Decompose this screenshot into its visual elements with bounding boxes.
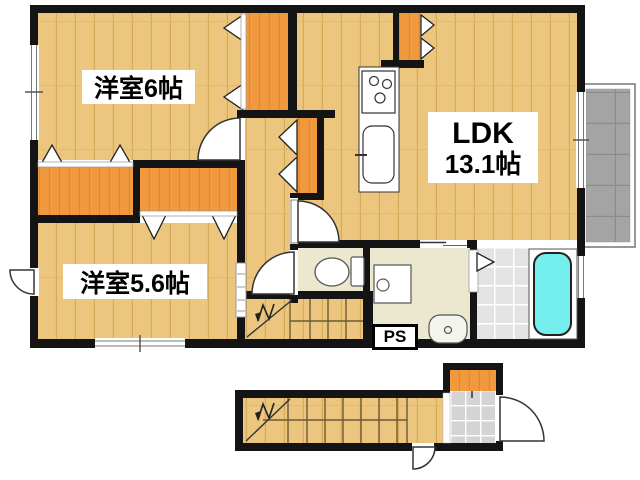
closet-a	[245, 13, 288, 110]
room-6-label: 洋室6帖	[82, 70, 195, 104]
second-floor	[10, 5, 635, 352]
kitchen	[355, 67, 399, 192]
ldk-door-leaf	[291, 200, 298, 243]
ldk-label-line2: 13.1帖	[445, 150, 522, 179]
toilet-icon	[315, 258, 349, 286]
bathtub-icon	[534, 253, 571, 335]
room56-door-arc	[10, 270, 34, 294]
closet-b	[297, 118, 317, 193]
ldk-label: LDK 13.1帖	[428, 112, 538, 183]
pipe-space-label: PS	[372, 324, 418, 350]
sliding-door	[236, 263, 246, 317]
toilet-tank	[351, 257, 364, 286]
first-floor-entrance	[235, 363, 544, 469]
closet-c2	[140, 168, 237, 215]
entry-step-strip	[443, 393, 450, 443]
entry-tile	[450, 391, 496, 443]
kitchen-sink-icon	[363, 126, 394, 183]
shoe-cabinet	[450, 370, 496, 391]
closet-c1	[38, 167, 133, 215]
balcony-deck	[586, 89, 630, 242]
stove-icon	[362, 71, 395, 113]
room-56-label: 洋室5.6帖	[63, 264, 207, 299]
closet-d	[399, 13, 420, 60]
wash-basin-icon	[429, 315, 467, 343]
front-door-arc	[500, 397, 544, 441]
corridor-door-arc	[413, 447, 435, 469]
floor-plan: 洋室6帖 LDK 13.1帖 洋室5.6帖 PS const data = JS…	[0, 0, 640, 480]
ldk-label-line1: LDK	[452, 117, 514, 150]
